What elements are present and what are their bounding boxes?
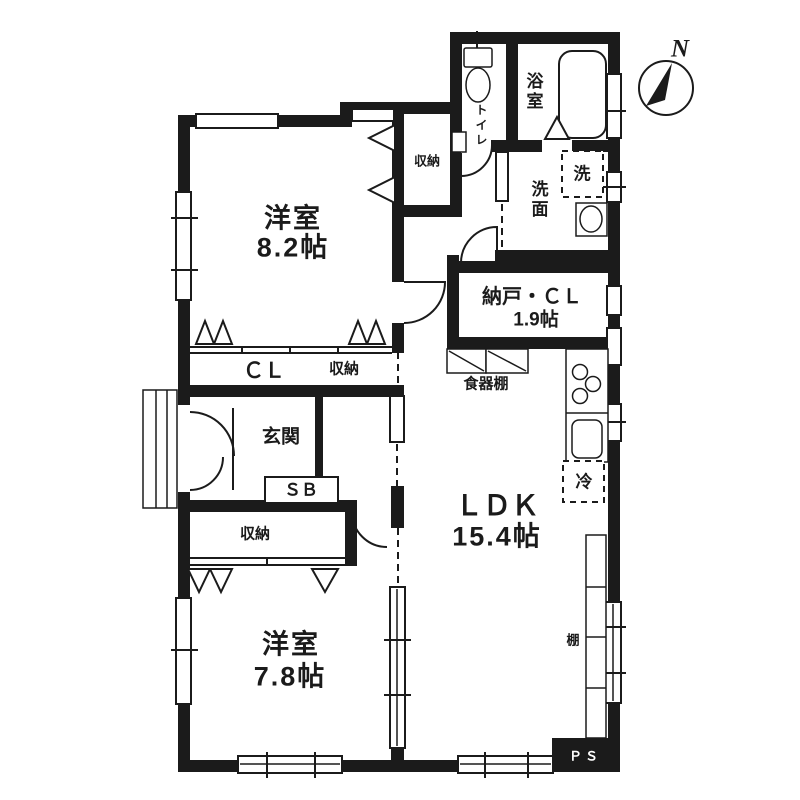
room-size-western2: 7.8帖 [254,664,327,691]
door-storage-room [461,227,497,263]
closet-mark [312,569,338,592]
closet-mark [367,321,385,344]
washbasin-icon [580,206,602,232]
closet-strip-doors [190,347,392,353]
compass-north-label: N [671,37,689,62]
compass-icon [639,61,693,115]
room-label-toilet: トイレ [475,104,487,149]
folding-door-icon [369,177,395,203]
room-size-western1: 8.2帖 [257,235,330,262]
room-label-entrance: 玄関 [262,428,300,447]
room-size-storage: 1.9帖 [513,311,558,330]
closet-upper-label: 収納 [414,155,440,168]
toilet-bowl-icon [466,68,490,102]
window-right-kitchen-a [607,328,621,365]
closet-cl-label: ＣＬ [243,361,285,382]
closet-mark [188,569,210,592]
room-label-bath: 浴室 [525,72,542,112]
fridge-label: 冷 [576,474,593,491]
closet-mark [210,569,232,592]
window-top [196,114,278,128]
room-label-western1: 洋室 [264,206,322,233]
washer-label: 洗 [574,166,591,183]
room-label-western2: 洋室 [262,632,320,659]
shelf-label: 棚 [566,634,579,647]
folding-door-icon [369,125,395,151]
window-top-small [352,109,394,121]
cupboard-label: 食器棚 [463,377,508,392]
window-right-storage [607,286,621,315]
room-label-storage: 納戸・ＣＬ [482,287,582,307]
floorplan: 洋室 8.2帖 洋室 7.8帖 ＬＤＫ 15.4帖 納戸・ＣＬ 1.9帖 玄関 … [0,0,800,800]
stove-burner-icon [573,365,588,380]
closet-lower-label: 収納 [240,527,270,542]
shoe-box-label: ＳＢ [284,482,318,499]
door-western2 [352,512,387,547]
bathtub-icon [559,51,606,138]
entrance-porch [143,390,177,508]
room-size-ldk: 15.4帖 [452,524,542,551]
door-western1 [404,282,445,323]
closet-strip-label: 収納 [329,362,359,377]
closet-mark [214,321,232,344]
closet-mark [349,321,367,344]
window-right-bath [607,74,621,138]
closet-lower-doors [190,558,345,565]
kitchen-sink-icon [572,420,602,458]
stove-burner-icon [573,389,588,404]
stove-burner-icon [586,377,601,392]
toilet-tank-icon [464,48,492,67]
pipe-space-label: ＰＳ [569,750,601,763]
toilet-shelf [452,132,466,152]
floorplan-drawing [0,0,800,800]
entrance-double-door [190,408,234,490]
window-left-upper [176,192,191,300]
washroom-sliding-leaf [496,152,508,201]
closet-mark [196,321,214,344]
room-label-washroom: 洗面 [530,180,547,220]
ldk-sliding-leaf [390,396,404,442]
room-label-ldk: ＬＤＫ [455,492,539,520]
